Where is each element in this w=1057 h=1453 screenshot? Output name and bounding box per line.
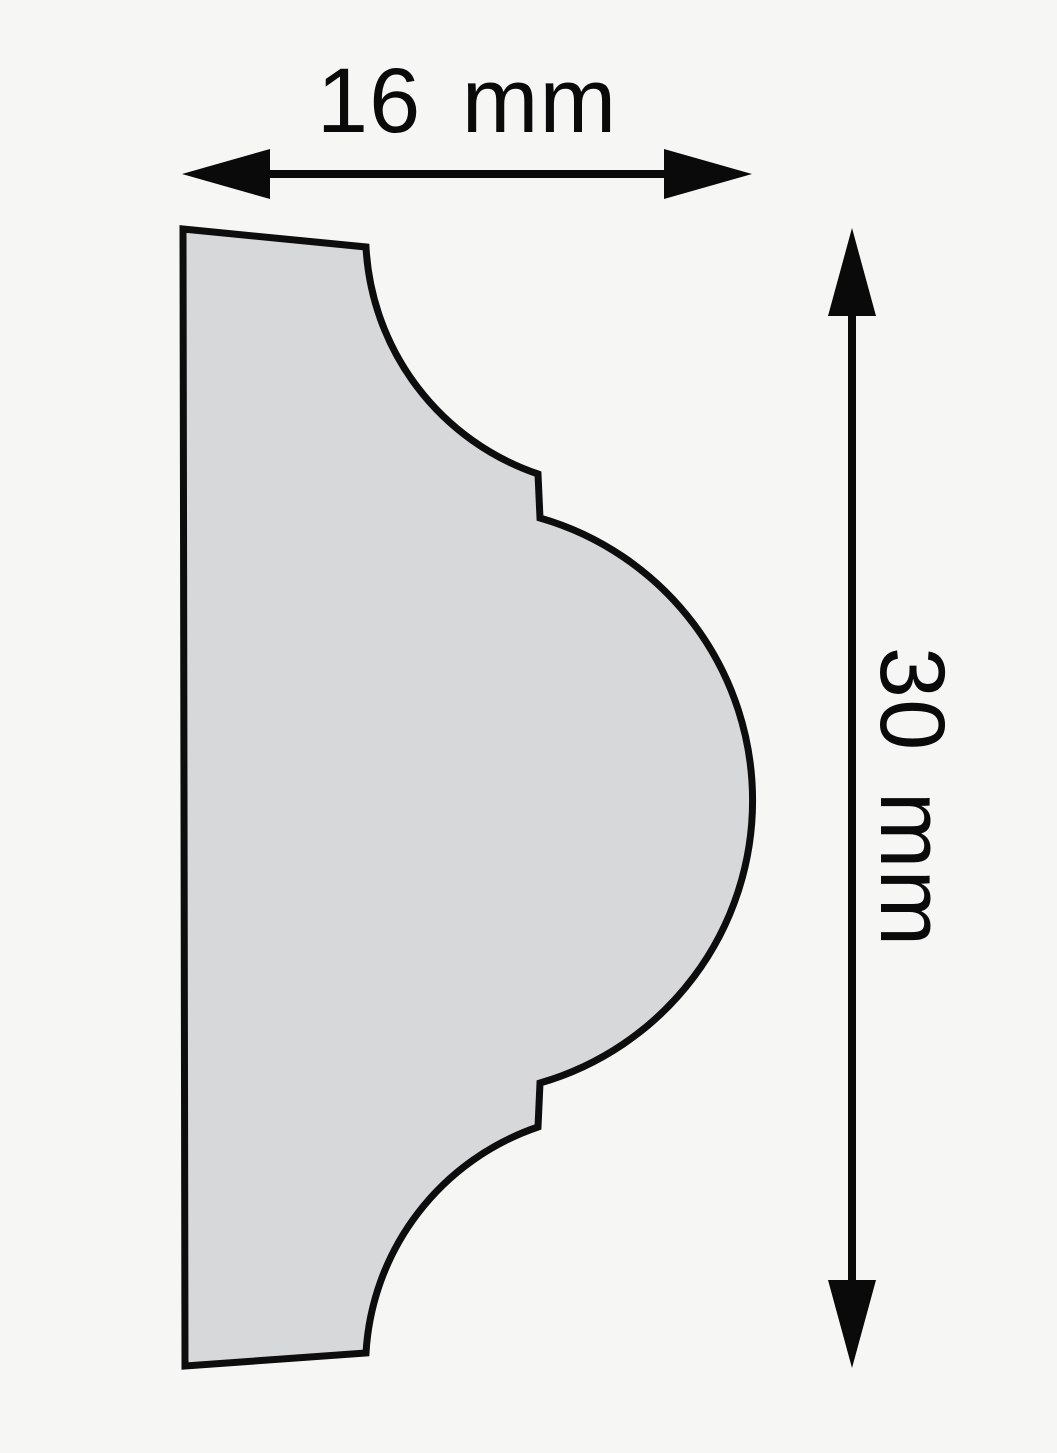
molding-profile-shape	[183, 229, 753, 1366]
width-dimension-arrow	[182, 149, 752, 199]
width-dimension-label: 16 mm	[317, 55, 617, 147]
diagram-canvas: 16 mm 30 mm	[0, 0, 1057, 1453]
arrow-left-icon	[182, 149, 270, 199]
arrow-down-icon	[828, 1280, 876, 1368]
arrow-up-icon	[828, 228, 876, 316]
height-dimension-label: 30 mm	[866, 647, 958, 947]
arrow-right-icon	[664, 149, 752, 199]
